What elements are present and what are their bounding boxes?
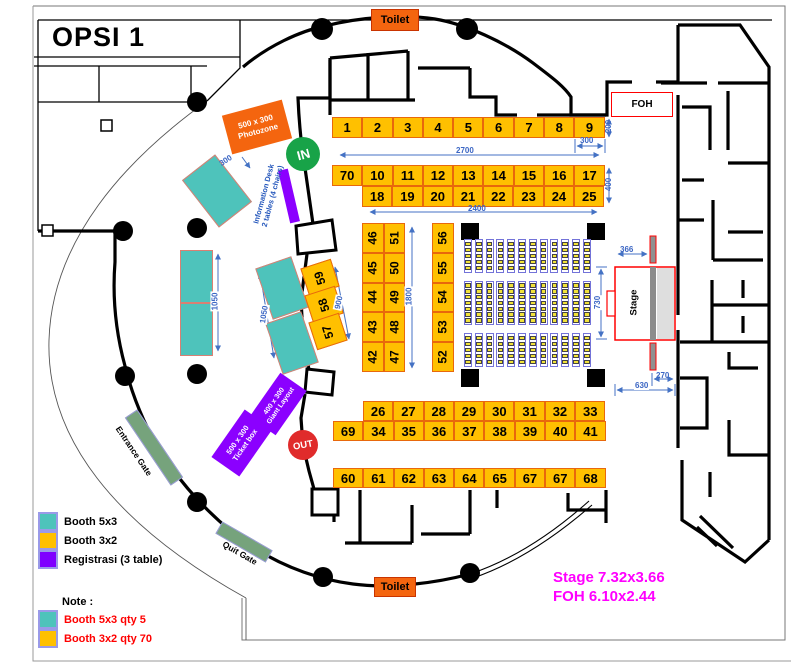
chair [552, 295, 558, 300]
booth-7: 7 [514, 117, 544, 138]
chair [498, 336, 504, 341]
chair-strip [475, 281, 483, 325]
chair [487, 248, 493, 253]
chair [541, 342, 547, 347]
chair [552, 354, 558, 359]
chair [530, 336, 536, 341]
dim-366: 366 [620, 245, 633, 254]
booth-2: 2 [362, 117, 392, 138]
chair [584, 248, 590, 253]
chair [541, 248, 547, 253]
chair-strip [464, 239, 472, 273]
chair [508, 318, 514, 323]
booth-5x3-left-1 [180, 250, 213, 303]
booth-51: 51 [384, 223, 406, 253]
chair [562, 254, 568, 259]
chair [487, 254, 493, 259]
chair-strip [507, 239, 515, 273]
chair [552, 248, 558, 253]
chair [562, 295, 568, 300]
chair [541, 307, 547, 312]
chair [519, 295, 525, 300]
chair [476, 266, 482, 271]
chair [508, 260, 514, 265]
chair-strip [550, 333, 558, 367]
chair [487, 318, 493, 323]
chair [508, 242, 514, 247]
chair [508, 307, 514, 312]
chair-strip [572, 333, 580, 367]
legend-item-booth3x2: Booth 3x2 [38, 531, 162, 550]
chair [465, 254, 471, 259]
booth-10: 10 [362, 165, 392, 186]
footnote-foh: FOH 6.10x2.44 [553, 587, 665, 606]
chair [465, 242, 471, 247]
chair-strip [540, 239, 548, 273]
booth-31: 31 [514, 401, 544, 421]
chair [487, 348, 493, 353]
toilet-top-label: Toilet [381, 14, 410, 26]
chair-strip [464, 281, 472, 325]
chair [465, 283, 471, 288]
booth-44: 44 [362, 283, 384, 313]
chair-strip [583, 239, 591, 273]
chair [562, 307, 568, 312]
note-item-booth5x3: Booth 5x3 qty 5 [38, 610, 152, 629]
chair [573, 307, 579, 312]
chair-strip [486, 239, 494, 273]
chair [508, 248, 514, 253]
booth-36: 36 [424, 421, 454, 441]
chair [584, 260, 590, 265]
chair [487, 354, 493, 359]
chair [552, 266, 558, 271]
chair [519, 248, 525, 253]
chair [562, 360, 568, 365]
chair [498, 312, 504, 317]
exit-out-circle: OUT [288, 430, 318, 460]
chair [562, 260, 568, 265]
booth-17: 17 [574, 165, 604, 186]
chair-strip [475, 239, 483, 273]
chair-strip [550, 281, 558, 325]
chair-strip [496, 281, 504, 325]
booth-40: 40 [545, 421, 575, 441]
chair [530, 266, 536, 271]
dim-2700: 2700 [456, 146, 474, 155]
booth-70: 70 [332, 165, 362, 186]
chair-strip [561, 281, 569, 325]
chair [487, 336, 493, 341]
chair [476, 301, 482, 306]
booth-61: 61 [363, 468, 393, 488]
booth-8: 8 [544, 117, 574, 138]
booth-58-label: 58 [315, 296, 332, 313]
chair [573, 266, 579, 271]
chair [584, 348, 590, 353]
stage-label: Stage [629, 273, 640, 333]
chair [519, 342, 525, 347]
chair [476, 248, 482, 253]
chair [476, 254, 482, 259]
chair [465, 342, 471, 347]
chair-strip [486, 333, 494, 367]
dim-300-booth9: 300 [580, 136, 593, 145]
chair [573, 283, 579, 288]
chair [584, 318, 590, 323]
booth-14: 14 [483, 165, 513, 186]
note-label-booth5x3: Booth 5x3 qty 5 [64, 614, 146, 626]
chair [584, 266, 590, 271]
booth-50: 50 [384, 253, 406, 283]
chair [498, 283, 504, 288]
chair [530, 318, 536, 323]
booth-37: 37 [454, 421, 484, 441]
chair [476, 354, 482, 359]
booth-38: 38 [484, 421, 514, 441]
chair [552, 301, 558, 306]
booth-42: 42 [362, 342, 384, 372]
booth-15: 15 [514, 165, 544, 186]
chair [498, 318, 504, 323]
chair [508, 336, 514, 341]
booth-24: 24 [544, 186, 574, 207]
booth-60: 60 [333, 468, 363, 488]
dim-1050-left: 1050 [210, 292, 219, 312]
booth-col-46-42: 4645444342 [362, 223, 384, 372]
chair [530, 312, 536, 317]
booth-12: 12 [423, 165, 453, 186]
chair [552, 289, 558, 294]
chair [519, 289, 525, 294]
booth-3: 3 [393, 117, 423, 138]
chair [519, 336, 525, 341]
booth-row-60-68: 606162636465676768 [333, 468, 606, 488]
chair [465, 312, 471, 317]
chair [487, 283, 493, 288]
chair [584, 312, 590, 317]
booth-52: 52 [432, 342, 454, 372]
chair-strip [496, 333, 504, 367]
dim-400: 400 [604, 178, 613, 191]
chair-strip [496, 239, 504, 273]
booth-68: 68 [575, 468, 605, 488]
booth-67: 67 [515, 468, 545, 488]
chair [562, 283, 568, 288]
booth-47: 47 [384, 342, 406, 372]
booth-28: 28 [424, 401, 454, 421]
chair [487, 301, 493, 306]
booth-30: 30 [484, 401, 514, 421]
chair [530, 354, 536, 359]
chair [562, 336, 568, 341]
in-label: IN [295, 145, 311, 163]
chair [487, 266, 493, 271]
chair [476, 312, 482, 317]
toilet-bottom-label: Toilet [381, 581, 410, 593]
chair [573, 354, 579, 359]
dim-630: 630 [634, 381, 649, 390]
chair [552, 336, 558, 341]
chair [552, 348, 558, 353]
chair [498, 360, 504, 365]
chair [476, 336, 482, 341]
chair [476, 342, 482, 347]
chair [573, 289, 579, 294]
chair [476, 318, 482, 323]
chair [562, 354, 568, 359]
chair [519, 254, 525, 259]
toilet-badge-top: Toilet [371, 9, 419, 31]
chair [476, 360, 482, 365]
legend-swatch-registrasi [38, 550, 58, 569]
booth-4: 4 [423, 117, 453, 138]
chair [498, 242, 504, 247]
chair [465, 266, 471, 271]
chair [562, 348, 568, 353]
chair [530, 283, 536, 288]
chair [519, 307, 525, 312]
chair [541, 360, 547, 365]
chair [498, 348, 504, 353]
chair [541, 354, 547, 359]
chair [562, 266, 568, 271]
chair [476, 260, 482, 265]
chair [487, 242, 493, 247]
chair [530, 348, 536, 353]
chair [487, 342, 493, 347]
chair [476, 348, 482, 353]
chair [552, 307, 558, 312]
dim-730: 730 [593, 295, 602, 310]
chair-strip [529, 281, 537, 325]
chair [584, 254, 590, 259]
chair [584, 301, 590, 306]
chair [584, 242, 590, 247]
chair-strip [561, 239, 569, 273]
chair [498, 307, 504, 312]
booth-48: 48 [384, 312, 406, 342]
chair [519, 348, 525, 353]
booth-11: 11 [393, 165, 423, 186]
chair [530, 295, 536, 300]
booth-55: 55 [432, 253, 454, 283]
booth-27: 27 [393, 401, 423, 421]
page-title: OPSI 1 [52, 22, 145, 53]
chair [562, 342, 568, 347]
chair [552, 242, 558, 247]
chair [530, 254, 536, 259]
chair [519, 242, 525, 247]
chair [573, 260, 579, 265]
note-block: Booth 5x3 qty 5 Booth 3x2 qty 70 [38, 610, 152, 648]
chair-strip [572, 281, 580, 325]
chair [519, 260, 525, 265]
chair-strip [550, 239, 558, 273]
booth-35: 35 [394, 421, 424, 441]
chair [465, 295, 471, 300]
chair [508, 342, 514, 347]
booth-59-label: 59 [311, 269, 328, 286]
note-label-booth3x2: Booth 3x2 qty 70 [64, 633, 152, 645]
chair [573, 248, 579, 253]
chair [519, 301, 525, 306]
size-footnote: Stage 7.32x3.66 FOH 6.10x2.44 [553, 568, 665, 606]
note-item-booth3x2: Booth 3x2 qty 70 [38, 629, 152, 648]
chair [530, 248, 536, 253]
foh-box: FOH [611, 92, 673, 117]
chair [508, 348, 514, 353]
chair [498, 342, 504, 347]
toilet-badge-bottom: Toilet [374, 577, 416, 597]
chair-strip [486, 281, 494, 325]
chair [541, 318, 547, 323]
chair [584, 360, 590, 365]
booth-41: 41 [575, 421, 605, 441]
chair [508, 301, 514, 306]
chair [552, 342, 558, 347]
legend-label-registrasi: Registrasi (3 table) [64, 554, 162, 566]
chair [562, 318, 568, 323]
booth-20: 20 [423, 186, 453, 207]
chair [508, 266, 514, 271]
chair [465, 318, 471, 323]
chair [552, 360, 558, 365]
chair [465, 336, 471, 341]
booth-row-70-17: 701011121314151617 [332, 165, 605, 186]
double-arc [470, 501, 592, 578]
booth-45: 45 [362, 253, 384, 283]
chair [498, 295, 504, 300]
chair [541, 289, 547, 294]
chair [584, 295, 590, 300]
chair [476, 307, 482, 312]
booth-row-26-33: 2627282930313233 [363, 401, 605, 421]
legend: Booth 5x3 Booth 3x2 Registrasi (3 table) [38, 512, 162, 569]
booth-6: 6 [483, 117, 513, 138]
chair-strip [518, 281, 526, 325]
chair [530, 342, 536, 347]
small-squares [42, 120, 112, 236]
legend-item-booth5x3: Booth 5x3 [38, 512, 162, 531]
chair [573, 336, 579, 341]
chair [552, 254, 558, 259]
note-title: Note : [62, 596, 93, 608]
chair-strip [561, 333, 569, 367]
chair-strip [583, 333, 591, 367]
note-swatch-booth5x3 [38, 610, 58, 629]
chair [573, 348, 579, 353]
booth-49: 49 [384, 283, 406, 313]
booth-64: 64 [454, 468, 484, 488]
booth-56: 56 [432, 223, 454, 253]
chair [487, 295, 493, 300]
chair [552, 260, 558, 265]
chair-strip [529, 333, 537, 367]
chair [530, 260, 536, 265]
chair [508, 283, 514, 288]
chair [552, 318, 558, 323]
dim-2400: 2400 [468, 204, 486, 213]
chair [541, 260, 547, 265]
booth-46: 46 [362, 223, 384, 253]
chair [573, 342, 579, 347]
footnote-stage: Stage 7.32x3.66 [553, 568, 665, 587]
chair [465, 248, 471, 253]
chair [584, 354, 590, 359]
booth-row-1-9: 123456789 [332, 117, 605, 138]
chair [584, 289, 590, 294]
chair [487, 307, 493, 312]
booth-13: 13 [453, 165, 483, 186]
dim-200: 200 [604, 120, 613, 133]
chair [573, 254, 579, 259]
booth-34: 34 [363, 421, 393, 441]
chair [573, 301, 579, 306]
chair [552, 312, 558, 317]
booth-53: 53 [432, 312, 454, 342]
booth-43: 43 [362, 312, 384, 342]
chair [530, 307, 536, 312]
chair [498, 248, 504, 253]
chair-strip [518, 333, 526, 367]
chair [519, 354, 525, 359]
chair [530, 360, 536, 365]
booth-22: 22 [483, 186, 513, 207]
chair [498, 254, 504, 259]
chair [498, 301, 504, 306]
chair [519, 266, 525, 271]
entrance-in-circle: IN [286, 137, 320, 171]
booth-16: 16 [544, 165, 574, 186]
chair [541, 266, 547, 271]
chair [519, 312, 525, 317]
booth-39: 39 [515, 421, 545, 441]
booth-33: 33 [575, 401, 605, 421]
booth-65: 65 [484, 468, 514, 488]
chair [541, 283, 547, 288]
chair [562, 248, 568, 253]
booth-18: 18 [362, 186, 392, 207]
chair [508, 354, 514, 359]
chair [519, 283, 525, 288]
chair [519, 360, 525, 365]
booth-19: 19 [392, 186, 422, 207]
booth-69: 69 [333, 421, 363, 441]
chair [508, 254, 514, 259]
booth-col-56-52: 5655545352 [432, 223, 454, 372]
booth-32: 32 [545, 401, 575, 421]
chair [476, 289, 482, 294]
chair [508, 289, 514, 294]
chair [562, 289, 568, 294]
chair [541, 348, 547, 353]
chair-strip [518, 239, 526, 273]
chair [498, 260, 504, 265]
chair [573, 242, 579, 247]
legend-label-booth5x3: Booth 5x3 [64, 516, 117, 528]
chair [498, 354, 504, 359]
chair [508, 295, 514, 300]
chair [465, 307, 471, 312]
chair-strip [583, 281, 591, 325]
chair [541, 242, 547, 247]
booth-1: 1 [332, 117, 362, 138]
chair [584, 336, 590, 341]
chair [541, 336, 547, 341]
chair [487, 360, 493, 365]
chair [465, 354, 471, 359]
